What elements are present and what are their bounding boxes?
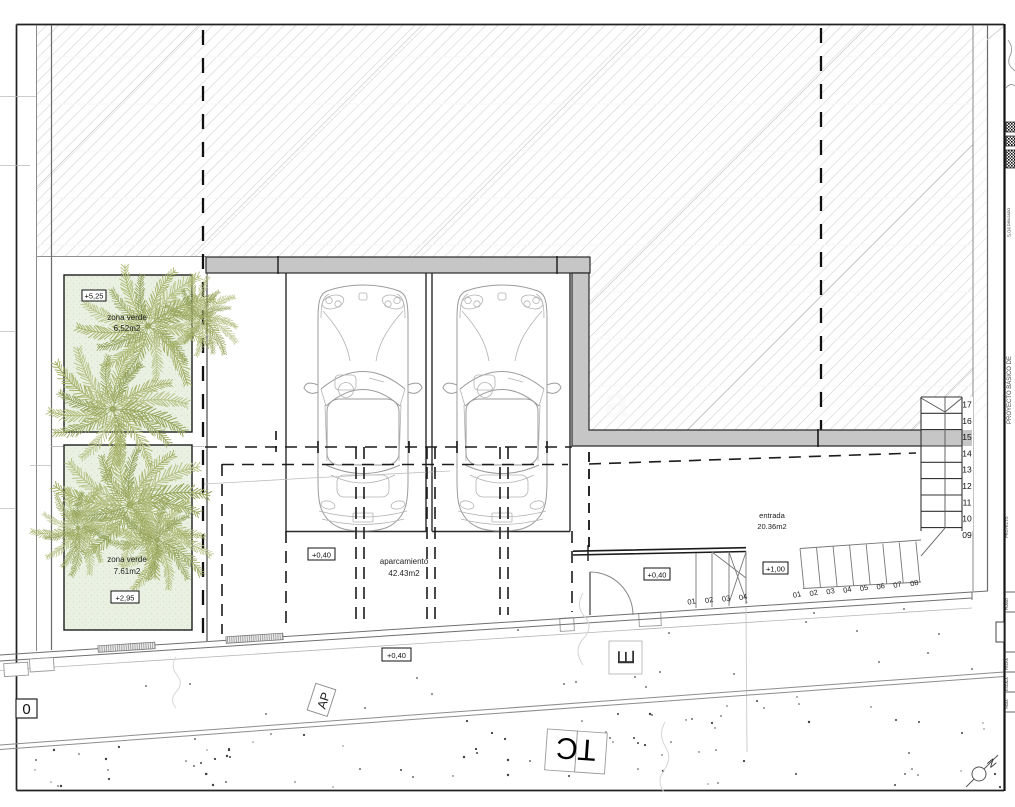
svg-text:+0,40: +0,40 bbox=[387, 651, 406, 660]
svg-text:09: 09 bbox=[962, 530, 972, 540]
svg-text:PROYECTO: PROYECTO bbox=[1005, 516, 1009, 537]
svg-text:17: 17 bbox=[962, 400, 972, 410]
svg-text:+0,40: +0,40 bbox=[312, 551, 331, 560]
svg-text:PROYECTO BÁSICO DE: PROYECTO BÁSICO DE bbox=[1006, 356, 1013, 424]
svg-text:5.04: 5.04 bbox=[1007, 227, 1013, 237]
svg-text:+1,00: +1,00 bbox=[766, 565, 785, 574]
svg-text:16: 16 bbox=[962, 416, 972, 426]
svg-text:20.36m2: 20.36m2 bbox=[757, 522, 787, 531]
svg-text:12: 12 bbox=[962, 481, 972, 491]
svg-text:0: 0 bbox=[22, 701, 30, 718]
svg-text:10: 10 bbox=[962, 514, 972, 524]
svg-text:14: 14 bbox=[962, 448, 972, 458]
svg-text:+5,25: +5,25 bbox=[85, 292, 104, 301]
svg-text:aparcamiento: aparcamiento bbox=[380, 557, 429, 566]
svg-text:DIBUJADO: DIBUJADO bbox=[1007, 208, 1011, 226]
svg-text:FECHA: FECHA bbox=[1005, 658, 1009, 670]
svg-text:11: 11 bbox=[963, 497, 972, 507]
svg-text:entrada: entrada bbox=[759, 511, 786, 520]
svg-text:42.43m2: 42.43m2 bbox=[388, 569, 420, 578]
svg-text:E: E bbox=[613, 650, 639, 665]
svg-text:7.61m2: 7.61m2 bbox=[114, 567, 141, 576]
svg-text:+0,40: +0,40 bbox=[648, 571, 667, 580]
svg-text:04: 04 bbox=[738, 592, 748, 602]
svg-text:13: 13 bbox=[962, 465, 972, 475]
svg-text:01: 01 bbox=[687, 596, 697, 606]
svg-text:HOJA: HOJA bbox=[1005, 699, 1009, 709]
svg-text:6,52m2: 6,52m2 bbox=[114, 324, 141, 333]
svg-text:zona verde: zona verde bbox=[107, 555, 147, 564]
svg-text:a: a bbox=[604, 378, 629, 427]
svg-text:zona verde: zona verde bbox=[107, 313, 147, 322]
svg-text:+2,95: +2,95 bbox=[116, 594, 135, 603]
svg-text:ESCALA: ESCALA bbox=[1005, 677, 1009, 691]
svg-text:TC: TC bbox=[555, 731, 597, 767]
svg-text:02: 02 bbox=[704, 595, 714, 605]
svg-text:PLANO: PLANO bbox=[1005, 598, 1009, 610]
svg-text:15: 15 bbox=[962, 432, 972, 442]
svg-text:03: 03 bbox=[721, 593, 731, 603]
